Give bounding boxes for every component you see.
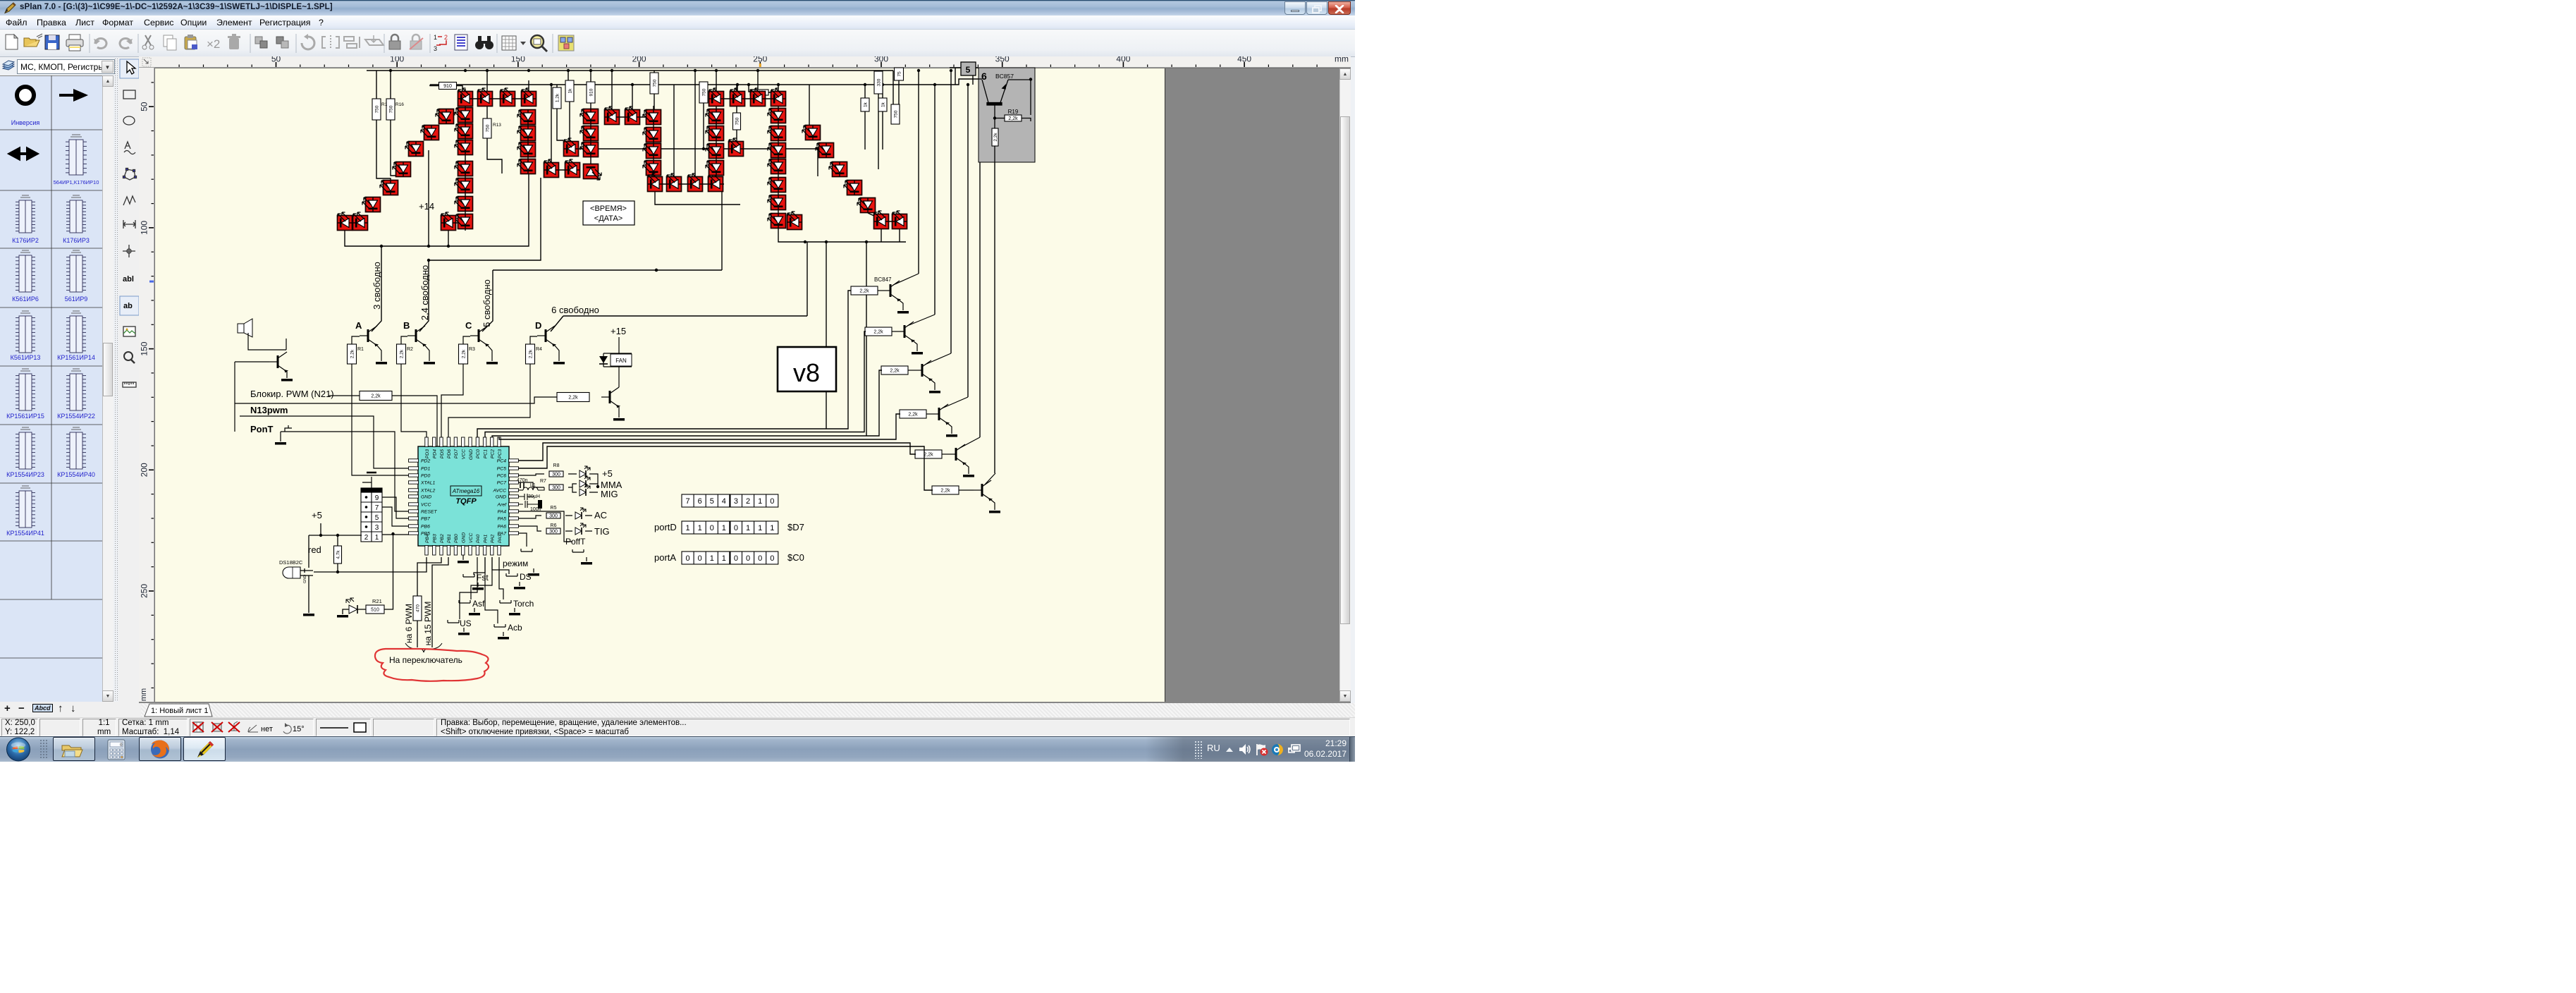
svg-text:D: D <box>535 320 541 331</box>
svg-text:portD: portD <box>654 522 677 532</box>
svg-text:B: B <box>403 320 410 331</box>
svg-text:100: 100 <box>140 221 149 235</box>
svg-text:PA4: PA4 <box>498 510 507 515</box>
svg-text:R7: R7 <box>540 479 546 484</box>
svg-text:Инверсия: Инверсия <box>11 119 40 126</box>
svg-text:2,2k: 2,2k <box>568 396 578 401</box>
svg-text:2,2k: 2,2k <box>859 289 869 294</box>
svg-text:1: 1 <box>770 524 774 532</box>
svg-text:0: 0 <box>770 497 774 506</box>
svg-text:Asf: Asf <box>472 599 485 609</box>
svg-text:0: 0 <box>710 524 714 532</box>
svg-text:PD3: PD3 <box>425 449 430 458</box>
svg-text:PA0: PA0 <box>476 534 481 543</box>
svg-text:GND: GND <box>496 495 506 500</box>
svg-text:510: 510 <box>371 608 379 613</box>
svg-text:КР1554ИР41: КР1554ИР41 <box>6 530 44 537</box>
svg-text:К561ИР6: К561ИР6 <box>12 296 39 303</box>
svg-text:450: 450 <box>1237 56 1251 64</box>
svg-text:PD5: PD5 <box>440 449 445 458</box>
svg-text:L1: L1 <box>530 483 536 488</box>
svg-text:FAN: FAN <box>615 358 627 364</box>
svg-text:250: 250 <box>140 584 149 598</box>
svg-text:R19: R19 <box>1008 109 1019 115</box>
svg-text:VCC: VCC <box>421 503 431 508</box>
svg-text:C: C <box>465 320 472 331</box>
svg-text:нет: нет <box>261 725 273 733</box>
svg-text:910: 910 <box>443 84 452 89</box>
svg-text:150: 150 <box>511 56 525 64</box>
svg-text:DS18B2C: DS18B2C <box>279 559 303 566</box>
svg-text:PD1: PD1 <box>421 467 430 472</box>
svg-text:2: 2 <box>364 534 369 542</box>
svg-text:300: 300 <box>552 473 560 477</box>
svg-text:PB0: PB0 <box>454 534 459 543</box>
svg-text:US: US <box>460 619 472 628</box>
svg-text:2,2k: 2,2k <box>908 413 918 418</box>
svg-text:1: 1 <box>434 34 437 41</box>
svg-text:2,2k: 2,2k <box>924 453 933 458</box>
svg-text:1k: 1k <box>881 102 886 107</box>
svg-text:750: 750 <box>735 117 740 125</box>
svg-text:PD4: PD4 <box>433 449 438 458</box>
svg-text:2,2k: 2,2k <box>1008 116 1018 121</box>
svg-text:15°: 15° <box>293 725 305 733</box>
svg-text:1k: 1k <box>864 102 869 107</box>
svg-text:GND: GND <box>469 449 474 460</box>
svg-text:561ИР9: 561ИР9 <box>65 296 88 303</box>
svg-text:PA6: PA6 <box>498 525 507 530</box>
svg-text:PoffT: PoffT <box>565 537 586 547</box>
svg-text:TIG: TIG <box>594 526 610 537</box>
svg-text:PB7: PB7 <box>421 517 430 522</box>
svg-text:0: 0 <box>734 554 738 563</box>
svg-text:Aref: Aref <box>497 503 508 508</box>
svg-text:К176ИР2: К176ИР2 <box>12 237 39 244</box>
svg-text:PC4: PC4 <box>497 459 506 464</box>
svg-text:1k: 1k <box>568 88 573 94</box>
svg-text:470n: 470n <box>517 478 528 483</box>
svg-text:750: 750 <box>702 88 707 96</box>
svg-text:PB6: PB6 <box>421 525 430 530</box>
svg-text:1: 1 <box>685 524 689 532</box>
svg-text:GND: GND <box>462 532 467 543</box>
svg-text:250: 250 <box>753 56 767 64</box>
svg-text:PC2: PC2 <box>491 449 496 458</box>
svg-text:КР1554ИР40: КР1554ИР40 <box>57 471 95 478</box>
svg-text:300: 300 <box>552 486 560 491</box>
svg-text:2,2k: 2,2k <box>350 349 355 358</box>
svg-text:ab: ab <box>123 302 133 310</box>
svg-text:7: 7 <box>375 504 379 512</box>
svg-text:2,4 свободно: 2,4 свободно <box>419 265 430 321</box>
svg-text:750: 750 <box>653 79 658 87</box>
svg-text:3: 3 <box>734 497 738 506</box>
svg-text:RESET: RESET <box>421 510 438 515</box>
svg-text:режим: режим <box>503 559 528 568</box>
svg-text:750: 750 <box>894 110 899 118</box>
svg-text:30µH: 30µH <box>528 494 540 499</box>
svg-text:750: 750 <box>389 105 394 113</box>
svg-text:2,2k: 2,2k <box>400 349 405 358</box>
svg-text:1: 1 <box>758 497 762 506</box>
svg-text:PC1: PC1 <box>483 449 488 458</box>
svg-text:portA: portA <box>654 552 676 563</box>
svg-text:PC5: PC5 <box>497 467 506 472</box>
svg-text:XTAL1: XTAL1 <box>420 481 435 486</box>
svg-text:75: 75 <box>897 71 902 77</box>
svg-text:R5: R5 <box>551 506 557 511</box>
svg-text:2,2k: 2,2k <box>371 394 381 399</box>
svg-text:<ВРЕМЯ>: <ВРЕМЯ> <box>590 205 627 213</box>
svg-text:PonT: PonT <box>250 424 274 434</box>
svg-text:2,2k: 2,2k <box>873 330 883 335</box>
svg-text:R1: R1 <box>381 102 388 107</box>
svg-text:910: 910 <box>589 88 594 96</box>
svg-text:2,2k: 2,2k <box>993 133 998 142</box>
svg-text:350: 350 <box>995 56 1010 64</box>
svg-text:5: 5 <box>710 497 714 506</box>
svg-text:GND: GND <box>303 575 307 583</box>
svg-text:на 6 PWM: на 6 PWM <box>404 604 414 643</box>
svg-text:N13pwm: N13pwm <box>250 405 288 415</box>
svg-text:XTAL2: XTAL2 <box>420 489 435 494</box>
svg-text:R4: R4 <box>536 347 542 352</box>
svg-text:750: 750 <box>486 124 491 132</box>
svg-text:0: 0 <box>746 554 750 563</box>
svg-text:PC3: PC3 <box>498 449 503 458</box>
svg-text:на 15 PWM: на 15 PWM <box>423 602 433 646</box>
svg-text:R16: R16 <box>395 102 404 107</box>
svg-text:100: 100 <box>390 56 404 64</box>
svg-text:400: 400 <box>1116 56 1130 64</box>
svg-text:6 свободно: 6 свободно <box>551 305 599 315</box>
svg-text:200: 200 <box>140 463 149 477</box>
svg-text:0: 0 <box>734 524 738 532</box>
svg-text:4,7k: 4,7k <box>336 550 341 559</box>
svg-text:1,2k: 1,2k <box>556 93 560 102</box>
svg-text:v8: v8 <box>793 358 820 387</box>
svg-text:PC0: PC0 <box>476 449 481 458</box>
svg-text:300: 300 <box>874 56 888 64</box>
svg-text:1: 1 <box>758 524 762 532</box>
svg-text:BC857: BC857 <box>995 73 1014 80</box>
svg-text:564ИР1,К176ИР10: 564ИР1,К176ИР10 <box>54 179 99 185</box>
svg-text:2,2k: 2,2k <box>462 349 467 358</box>
svg-text:1: 1 <box>722 554 726 563</box>
svg-text:К176ИР3: К176ИР3 <box>63 237 90 244</box>
svg-text:6: 6 <box>698 497 702 506</box>
svg-text:3: 3 <box>375 524 379 532</box>
svg-text:К561ИР13: К561ИР13 <box>11 354 41 361</box>
svg-text:150: 150 <box>140 341 149 355</box>
svg-text:+5: +5 <box>312 510 322 520</box>
svg-text:Блокир. PWM (N21): Блокир. PWM (N21) <box>250 389 334 399</box>
svg-text:TQFP: TQFP <box>455 497 477 506</box>
svg-text:330: 330 <box>877 78 882 86</box>
svg-text:PD7: PD7 <box>454 449 459 458</box>
svg-text:КР1561ИР14: КР1561ИР14 <box>57 354 95 361</box>
svg-text:PD2: PD2 <box>421 459 430 464</box>
svg-text:5: 5 <box>966 65 971 75</box>
svg-text:2,2k: 2,2k <box>940 489 950 494</box>
svg-text:<ДАТА>: <ДАТА> <box>594 214 622 223</box>
svg-text:ATmega16: ATmega16 <box>452 488 480 494</box>
svg-text:R6: R6 <box>551 523 557 528</box>
svg-text:1: Новый лист 1: 1: Новый лист 1 <box>151 707 209 715</box>
svg-text:MIG: MIG <box>601 489 618 499</box>
svg-text:R21: R21 <box>372 598 382 604</box>
svg-text:470: 470 <box>416 604 421 612</box>
svg-text:R13: R13 <box>493 123 501 128</box>
svg-text:VCC: VCC <box>469 533 474 543</box>
svg-text:PC6: PC6 <box>497 474 506 479</box>
svg-text:200: 200 <box>632 56 646 64</box>
svg-text:BC847: BC847 <box>874 276 892 283</box>
svg-text:1: 1 <box>746 524 750 532</box>
svg-text:3 свободно: 3 свободно <box>372 262 382 310</box>
svg-text:50: 50 <box>271 56 281 64</box>
svg-text:5 свободно: 5 свободно <box>482 279 492 327</box>
svg-text:50: 50 <box>140 102 149 111</box>
svg-text:R1: R1 <box>357 347 364 352</box>
svg-text:R3: R3 <box>469 347 475 352</box>
svg-text:1: 1 <box>698 524 702 532</box>
svg-text:0: 0 <box>698 554 702 563</box>
svg-text:КР1561ИР15: КР1561ИР15 <box>6 413 44 420</box>
svg-text:2: 2 <box>444 34 448 41</box>
svg-text:Fst: Fst <box>477 573 489 583</box>
svg-text:PB3: PB3 <box>433 534 438 543</box>
svg-text:mm: mm <box>140 688 148 701</box>
svg-text:0: 0 <box>770 554 774 563</box>
svg-text:5: 5 <box>375 514 379 522</box>
svg-text:PA3: PA3 <box>498 534 503 543</box>
svg-text:R2: R2 <box>407 347 413 352</box>
svg-text:VCC: VCC <box>462 449 467 459</box>
svg-text:2: 2 <box>746 497 750 506</box>
svg-text:+15: +15 <box>611 326 626 336</box>
svg-text:PA1: PA1 <box>483 534 488 543</box>
svg-text:R8: R8 <box>553 463 560 468</box>
svg-text:A: A <box>355 320 362 331</box>
svg-text:PA2: PA2 <box>491 534 496 543</box>
svg-text:PB2: PB2 <box>440 534 445 543</box>
svg-text:×2: ×2 <box>207 37 220 51</box>
svg-text:3: 3 <box>434 45 437 52</box>
svg-text:9: 9 <box>375 494 379 502</box>
svg-text:$D7: $D7 <box>787 522 804 532</box>
svg-text:300: 300 <box>549 514 558 519</box>
svg-text:2,2k: 2,2k <box>529 349 534 358</box>
svg-text:abl: abl <box>123 275 134 284</box>
svg-text:+5: +5 <box>602 468 613 479</box>
svg-text:+14: +14 <box>419 201 434 212</box>
svg-text:На переключатель: На переключатель <box>389 655 462 665</box>
svg-text:PA5: PA5 <box>498 517 507 522</box>
svg-text:0: 0 <box>685 554 689 563</box>
svg-text:Torch: Torch <box>513 599 534 609</box>
svg-text:Acb: Acb <box>508 623 522 633</box>
svg-text:1: 1 <box>710 554 714 563</box>
svg-text:AC: AC <box>594 510 607 520</box>
svg-text:PC7: PC7 <box>497 481 506 486</box>
svg-text:$C0: $C0 <box>787 552 804 563</box>
svg-text:КР1554ИР23: КР1554ИР23 <box>6 471 44 478</box>
svg-text:1: 1 <box>375 534 379 542</box>
svg-text:2,2k: 2,2k <box>890 369 900 374</box>
svg-text:7: 7 <box>685 497 689 506</box>
svg-text:PB1: PB1 <box>447 534 452 543</box>
svg-text:mm: mm <box>1335 56 1349 64</box>
svg-text:1: 1 <box>722 524 726 532</box>
svg-text:300: 300 <box>549 530 558 535</box>
svg-text:КР1554ИР22: КР1554ИР22 <box>57 413 95 420</box>
svg-text:PD0: PD0 <box>421 474 430 479</box>
svg-text:0: 0 <box>758 554 762 563</box>
svg-text:4: 4 <box>722 497 726 506</box>
svg-text:PB4: PB4 <box>425 534 430 543</box>
svg-text:PD6: PD6 <box>447 449 452 458</box>
svg-text:750: 750 <box>375 105 380 113</box>
svg-text:AVCC: AVCC <box>492 489 506 494</box>
svg-text:red: red <box>308 544 321 555</box>
svg-text:0: 0 <box>120 743 123 748</box>
svg-text:GND: GND <box>421 495 431 500</box>
